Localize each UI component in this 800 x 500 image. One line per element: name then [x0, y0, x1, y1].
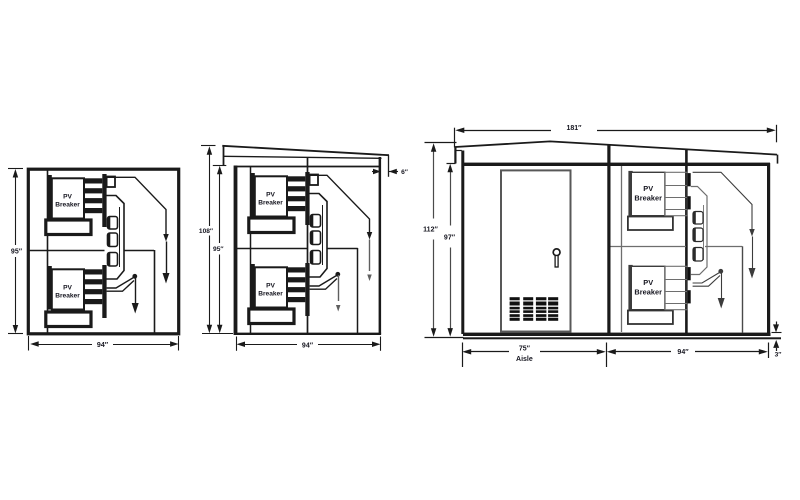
svg-text:Aisle: Aisle	[516, 356, 533, 363]
svg-text:6″: 6″	[401, 169, 409, 176]
svg-text:Breaker: Breaker	[55, 202, 80, 209]
svg-text:PV: PV	[266, 192, 275, 199]
svg-text:Breaker: Breaker	[258, 200, 283, 207]
svg-text:97″: 97″	[444, 234, 456, 241]
svg-text:94″: 94″	[677, 349, 689, 356]
svg-text:PV: PV	[643, 278, 653, 287]
svg-text:Breaker: Breaker	[258, 291, 283, 298]
svg-text:112″: 112″	[423, 227, 438, 234]
svg-text:3″: 3″	[775, 351, 783, 358]
svg-text:Breaker: Breaker	[55, 293, 80, 300]
svg-text:75″: 75″	[519, 346, 531, 353]
svg-text:94″: 94″	[302, 342, 314, 349]
svg-text:PV: PV	[643, 184, 653, 193]
svg-text:108″: 108″	[199, 228, 214, 235]
svg-text:Breaker: Breaker	[634, 287, 662, 296]
svg-text:PV: PV	[63, 194, 72, 201]
svg-text:PV: PV	[63, 285, 72, 292]
svg-text:95″: 95″	[11, 249, 23, 256]
svg-text:181″: 181″	[566, 125, 582, 132]
svg-text:PV: PV	[266, 283, 275, 290]
svg-text:Breaker: Breaker	[634, 193, 662, 202]
svg-text:94″: 94″	[97, 342, 109, 349]
svg-text:95″: 95″	[213, 246, 224, 253]
